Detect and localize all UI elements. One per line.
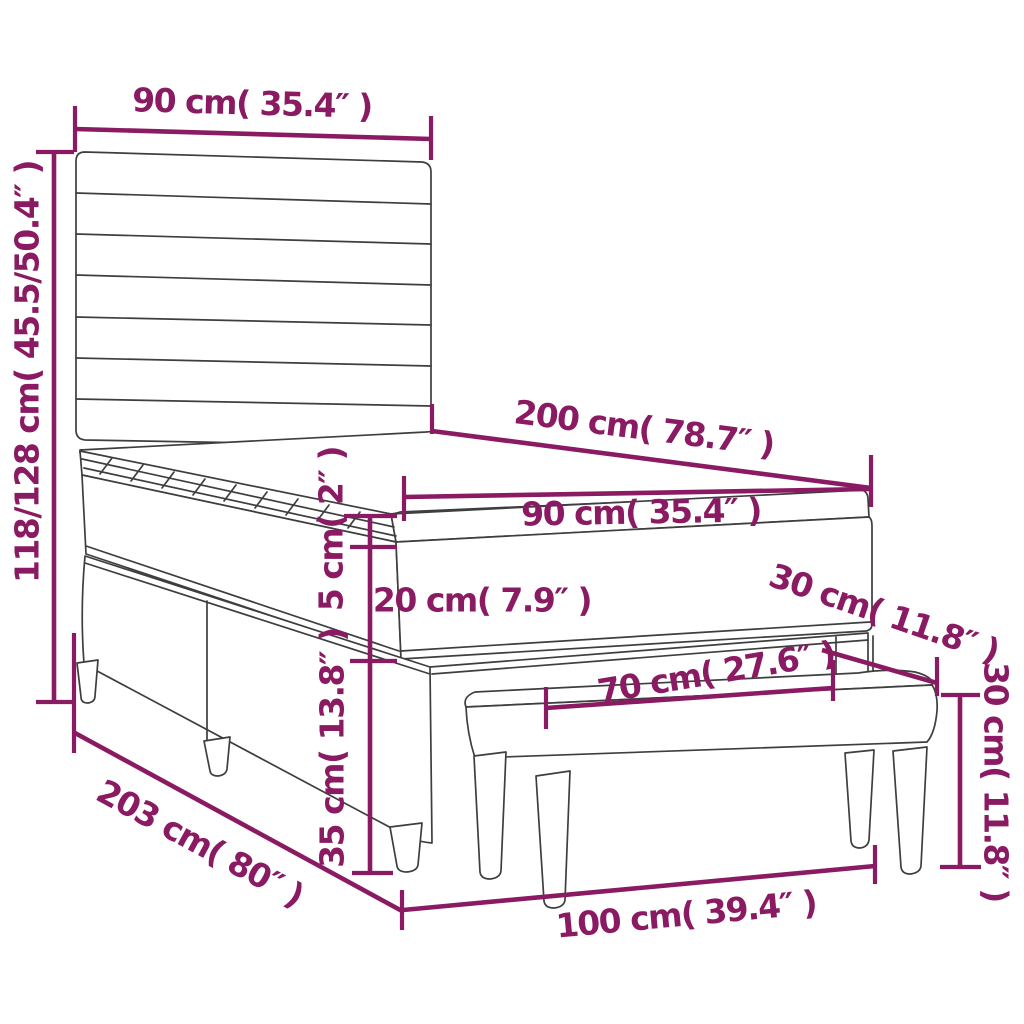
dim-bench-total-length: 100 cm( 39.4″ ) xyxy=(403,845,875,946)
bed-leg xyxy=(204,737,230,776)
dim-line xyxy=(75,129,431,139)
headboard xyxy=(76,152,431,446)
dim-label-topper-height: 5 cm( 2″ ) xyxy=(312,447,351,611)
dim-headboard-width: 90 cm( 35.4″ ) xyxy=(75,80,431,160)
bed-leg xyxy=(390,823,422,872)
bench-leg xyxy=(474,752,506,879)
dim-label-bench-height: 30 cm( 11.8″ ) xyxy=(976,662,1015,902)
dim-bed-height: 118/128 cm( 45.5/50.4″ ) xyxy=(8,152,74,702)
dim-label-headboard-width: 90 cm( 35.4″ ) xyxy=(132,80,373,126)
dim-bench-height: 30 cm( 11.8″ ) xyxy=(940,662,1015,902)
bench xyxy=(465,670,937,908)
bench-leg xyxy=(845,750,874,848)
dim-label-mattress-width: 90 cm( 35.4″ ) xyxy=(521,490,761,533)
dimension-diagram: 90 cm( 35.4″ ) 118/128 cm( 45.5/50.4″ ) … xyxy=(0,0,1024,1024)
dim-label-base-height: 35 cm( 13.8″ ) xyxy=(313,628,352,868)
bed-leg xyxy=(77,660,98,703)
bench-leg xyxy=(893,747,927,874)
bench-leg xyxy=(536,771,570,908)
dim-label-bed-height: 118/128 cm( 45.5/50.4″ ) xyxy=(8,161,47,583)
dim-label-mattress-height: 20 cm( 7.9″ ) xyxy=(373,581,591,620)
diagram-canvas: 90 cm( 35.4″ ) 118/128 cm( 45.5/50.4″ ) … xyxy=(0,0,1024,1024)
